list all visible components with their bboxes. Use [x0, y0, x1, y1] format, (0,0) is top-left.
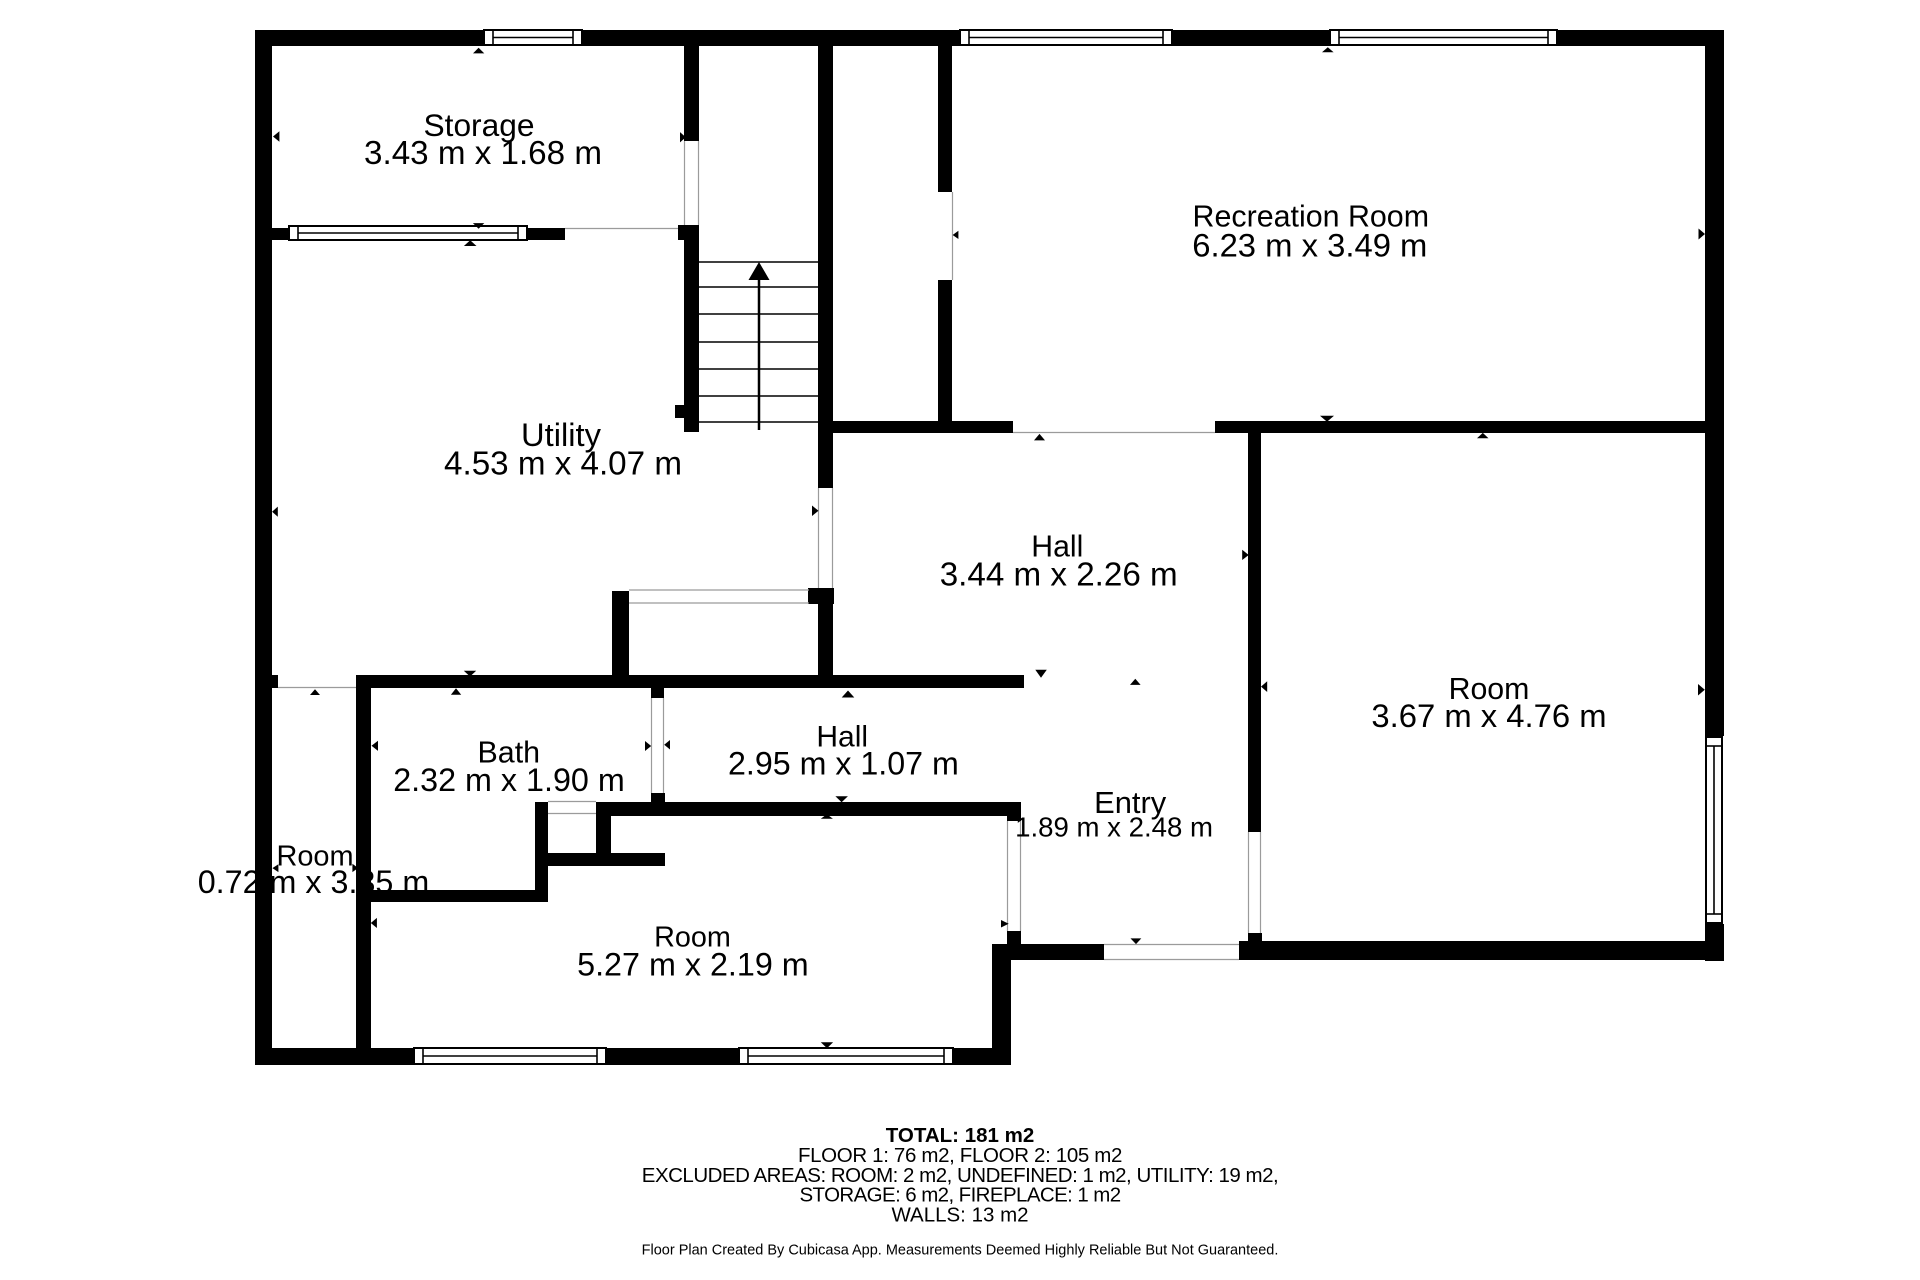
svg-text:3.44 m x 2.26 m: 3.44 m x 2.26 m	[940, 556, 1178, 593]
svg-text:3.67 m x 4.76 m: 3.67 m x 4.76 m	[1371, 697, 1606, 734]
svg-text:2.95 m x 1.07 m: 2.95 m x 1.07 m	[728, 746, 959, 782]
svg-text:0.72 m x 3.35 m: 0.72 m x 3.35 m	[198, 864, 430, 900]
svg-text:4.53 m x 4.07 m: 4.53 m x 4.07 m	[444, 445, 682, 482]
svg-text:1.89 m x 2.48 m: 1.89 m x 2.48 m	[1015, 811, 1213, 842]
svg-text:3.43 m x 1.68 m: 3.43 m x 1.68 m	[364, 135, 602, 172]
svg-text:6.23 m x 3.49 m: 6.23 m x 3.49 m	[1192, 227, 1427, 264]
svg-text:Floor Plan Created By Cubicasa: Floor Plan Created By Cubicasa App. Meas…	[642, 1243, 1279, 1259]
svg-text:5.27 m x 2.19 m: 5.27 m x 2.19 m	[577, 947, 809, 983]
svg-text:WALLS: 13 m2: WALLS: 13 m2	[891, 1204, 1028, 1227]
svg-text:2.32 m x 1.90 m: 2.32 m x 1.90 m	[393, 762, 625, 798]
